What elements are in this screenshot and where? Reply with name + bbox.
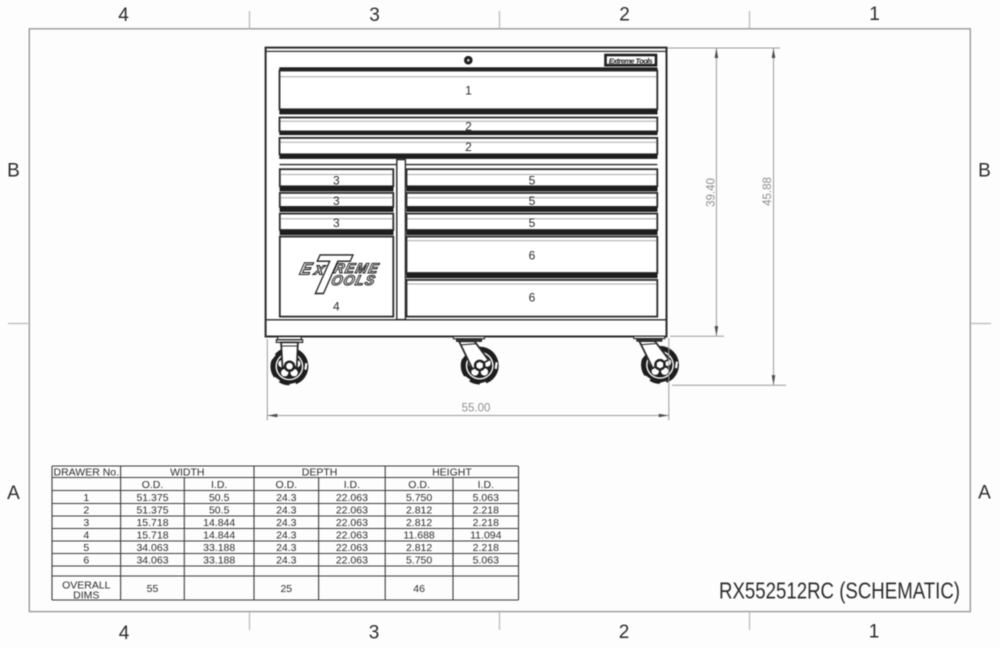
svg-text:6: 6	[529, 248, 536, 262]
svg-text:A: A	[978, 483, 991, 504]
svg-text:24.3: 24.3	[276, 517, 297, 529]
svg-text:55: 55	[147, 583, 159, 595]
svg-text:50.5: 50.5	[209, 492, 230, 504]
svg-text:2.218: 2.218	[473, 505, 499, 517]
svg-text:25: 25	[280, 583, 292, 595]
svg-text:2: 2	[619, 622, 630, 643]
svg-text:5: 5	[529, 174, 536, 188]
svg-text:33.188: 33.188	[203, 542, 235, 554]
svg-text:50.5: 50.5	[209, 505, 230, 517]
svg-text:I.D.: I.D.	[478, 479, 494, 491]
svg-text:1: 1	[465, 84, 472, 98]
svg-text:3: 3	[333, 194, 340, 208]
svg-text:14.844: 14.844	[203, 530, 235, 542]
svg-text:4: 4	[118, 5, 129, 26]
svg-text:2.218: 2.218	[473, 517, 499, 529]
svg-text:HEIGHT: HEIGHT	[432, 466, 472, 478]
svg-text:1: 1	[869, 4, 880, 25]
svg-text:2.812: 2.812	[406, 505, 432, 517]
svg-text:6: 6	[83, 555, 89, 567]
svg-text:2: 2	[619, 5, 630, 26]
svg-text:3: 3	[369, 5, 380, 26]
svg-text:24.3: 24.3	[276, 555, 297, 567]
svg-text:24.3: 24.3	[276, 492, 297, 504]
svg-text:2.812: 2.812	[406, 542, 432, 554]
svg-text:5.063: 5.063	[473, 492, 499, 504]
svg-text:22.063: 22.063	[336, 555, 368, 567]
svg-text:15.718: 15.718	[136, 530, 168, 542]
svg-text:3: 3	[83, 517, 89, 529]
svg-text:11.688: 11.688	[403, 530, 434, 542]
svg-text:4: 4	[119, 623, 130, 644]
svg-text:B: B	[978, 161, 991, 182]
svg-text:O.D.: O.D.	[408, 479, 430, 491]
svg-text:2: 2	[465, 120, 472, 134]
svg-text:2.218: 2.218	[473, 542, 499, 554]
svg-text:5.750: 5.750	[406, 492, 432, 504]
svg-text:39.40: 39.40	[706, 178, 718, 207]
svg-text:51.375: 51.375	[136, 492, 168, 504]
svg-text:33.188: 33.188	[203, 555, 235, 567]
svg-text:DEPTH: DEPTH	[302, 466, 338, 478]
svg-text:OOLS: OOLS	[330, 273, 377, 289]
svg-text:46: 46	[413, 583, 425, 595]
svg-text:14.844: 14.844	[203, 517, 235, 529]
svg-text:34.063: 34.063	[136, 555, 168, 567]
svg-text:3: 3	[333, 174, 340, 188]
svg-text:6: 6	[529, 290, 536, 304]
svg-text:5.750: 5.750	[406, 555, 432, 567]
svg-text:45.88: 45.88	[762, 177, 774, 206]
svg-text:15.718: 15.718	[136, 517, 168, 529]
svg-text:1: 1	[869, 622, 880, 643]
svg-text:24.3: 24.3	[276, 530, 297, 542]
svg-text:51.375: 51.375	[136, 505, 168, 517]
svg-text:DRAWER No.: DRAWER No.	[54, 466, 120, 478]
svg-text:5: 5	[529, 216, 536, 230]
svg-text:Extreme Tools: Extreme Tools	[609, 56, 653, 65]
svg-text:1: 1	[83, 492, 89, 504]
svg-text:5: 5	[83, 542, 89, 554]
svg-text:55.00: 55.00	[462, 403, 491, 415]
svg-text:22.063: 22.063	[336, 505, 368, 517]
svg-text:22.063: 22.063	[336, 492, 368, 504]
svg-text:O.D.: O.D.	[142, 479, 164, 491]
svg-text:4: 4	[83, 530, 89, 542]
svg-text:24.3: 24.3	[276, 542, 297, 554]
svg-text:RX552512RC (SCHEMATIC): RX552512RC (SCHEMATIC)	[719, 578, 960, 604]
svg-text:I.D.: I.D.	[211, 479, 227, 491]
svg-text:5: 5	[529, 194, 536, 208]
svg-text:5.063: 5.063	[473, 555, 499, 567]
svg-text:O.D.: O.D.	[276, 479, 298, 491]
svg-text:WIDTH: WIDTH	[170, 466, 204, 478]
svg-text:24.3: 24.3	[276, 505, 297, 517]
svg-text:DIMS: DIMS	[73, 590, 99, 602]
svg-text:3: 3	[369, 623, 380, 644]
svg-text:B: B	[7, 161, 20, 182]
svg-text:22.063: 22.063	[336, 517, 368, 529]
svg-text:22.063: 22.063	[336, 542, 368, 554]
svg-text:2.812: 2.812	[406, 517, 432, 529]
svg-text:34.063: 34.063	[136, 542, 168, 554]
svg-text:2: 2	[465, 140, 472, 154]
svg-text:22.063: 22.063	[336, 530, 368, 542]
svg-text:3: 3	[333, 216, 340, 230]
svg-text:A: A	[7, 483, 20, 504]
svg-text:2: 2	[83, 505, 89, 517]
svg-text:I.D.: I.D.	[344, 479, 360, 491]
svg-text:11.094: 11.094	[470, 530, 501, 542]
